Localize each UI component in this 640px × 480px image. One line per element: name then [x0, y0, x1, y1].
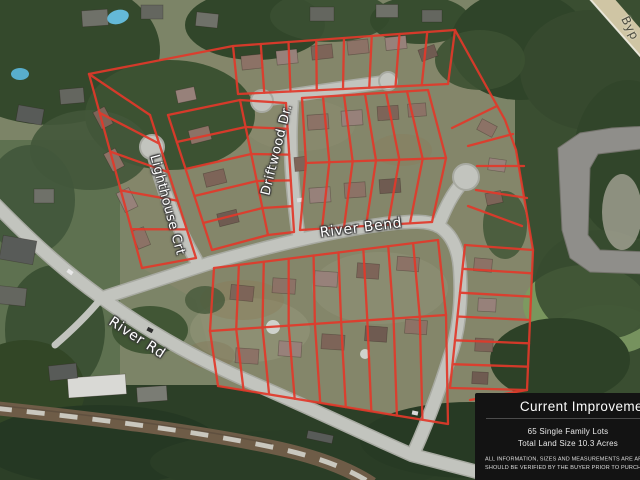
disclaimer-text: ALL INFORMATION, SIZES AND MEASUREMENTS …	[485, 455, 640, 472]
info-panel: Current Improvements 65 Single Family Lo…	[475, 393, 640, 480]
disclaimer-line-1: ALL INFORMATION, SIZES AND MEASUREMENTS …	[485, 455, 640, 464]
land-size-text: Total Land Size 10.3 Acres	[475, 438, 640, 450]
info-panel-title: Current Improvements	[475, 393, 640, 414]
aerial-map-view: Lighthouse Crt Driftwood Dr. River Bend …	[0, 0, 640, 480]
lots-count-text: 65 Single Family Lots	[475, 426, 640, 438]
disclaimer-line-2: SHOULD BE VERIFIED BY THE BUYER PRIOR TO…	[485, 464, 640, 473]
info-panel-divider	[486, 418, 640, 419]
